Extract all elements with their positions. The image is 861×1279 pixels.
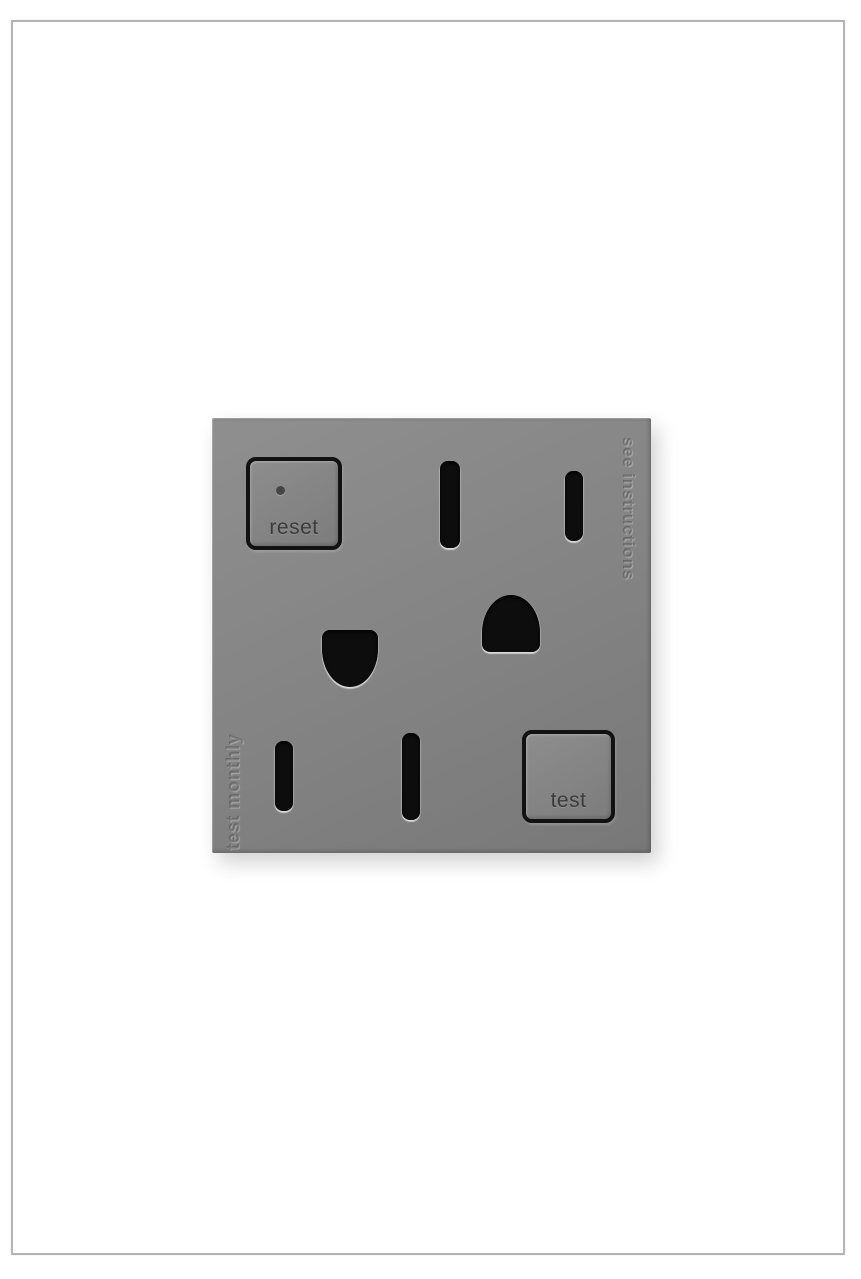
- test-button[interactable]: test: [522, 730, 615, 823]
- test-monthly-engraving: test monthly: [223, 733, 243, 850]
- reset-button[interactable]: reset: [246, 457, 342, 550]
- test-button-label: test: [526, 789, 611, 813]
- hot-slot-bottom-outlet: [275, 741, 293, 811]
- ground-hole-bottom-outlet: [322, 630, 378, 687]
- gfci-outlet-plate: see instructions test monthly reset test: [212, 418, 651, 853]
- product-photo: see instructions test monthly reset test: [0, 0, 861, 1279]
- ground-hole-top-outlet: [482, 595, 540, 652]
- see-instructions-engraving: see instructions: [618, 437, 638, 580]
- indicator-dot: [276, 486, 285, 495]
- neutral-slot-bottom-outlet: [402, 733, 420, 820]
- reset-button-label: reset: [250, 516, 338, 540]
- neutral-slot-top-outlet: [440, 461, 460, 548]
- hot-slot-top-outlet: [565, 471, 583, 541]
